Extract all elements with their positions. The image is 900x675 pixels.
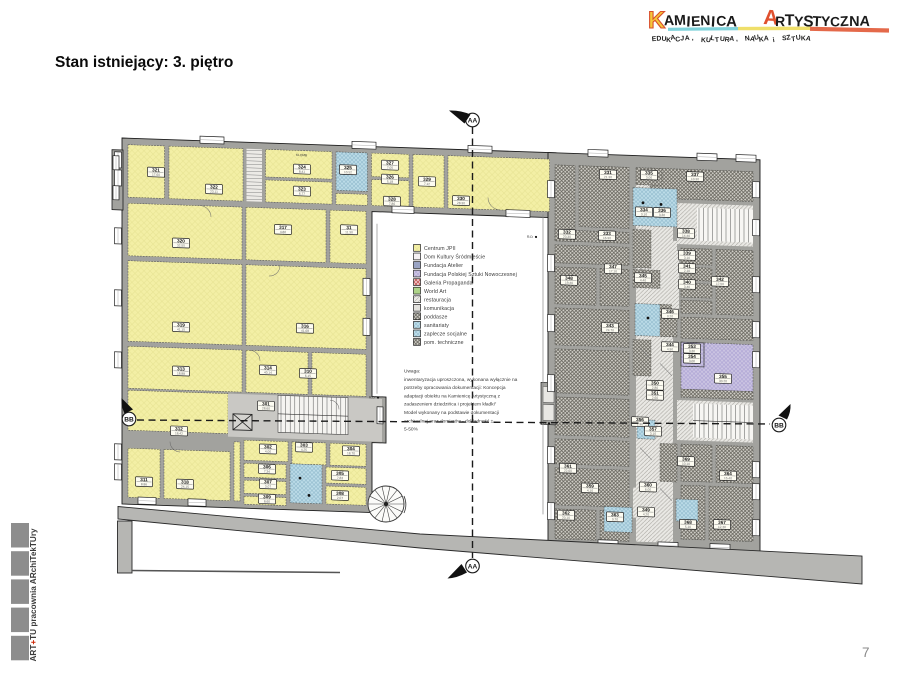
svg-text:13.30: 13.30	[691, 177, 699, 181]
svg-text:15.40: 15.40	[724, 476, 732, 480]
svg-text:adaptacji obiektu na Kamienicę: adaptacji obiektu na Kamienicę Artystycz…	[404, 393, 501, 399]
svg-text:4.00: 4.00	[265, 449, 271, 453]
svg-text:Uwaga:: Uwaga:	[404, 369, 420, 375]
svg-text:12.30: 12.30	[718, 525, 726, 529]
svg-text:4.20: 4.20	[643, 512, 649, 516]
svg-text:2.10: 2.10	[684, 269, 690, 273]
svg-text:17.50: 17.50	[716, 282, 724, 286]
svg-text:restauracja: restauracja	[424, 297, 451, 303]
svg-text:7.05: 7.05	[387, 166, 393, 170]
svg-text:8.86: 8.86	[141, 482, 147, 486]
svg-text:41.68: 41.68	[301, 329, 309, 333]
svg-text:22.60: 22.60	[564, 469, 572, 473]
svg-text:A: A	[764, 35, 769, 42]
svg-text:R.D: R.D	[527, 235, 533, 239]
svg-text:30.20: 30.20	[719, 379, 727, 383]
svg-text:21.30: 21.30	[604, 175, 612, 179]
svg-text:7: 7	[862, 645, 870, 660]
svg-text:24.15: 24.15	[181, 485, 189, 489]
svg-text:3.30: 3.30	[689, 349, 695, 353]
svg-text:3.00: 3.00	[646, 176, 652, 180]
svg-text:poddasze: poddasze	[424, 315, 447, 321]
svg-text:M: M	[674, 13, 687, 30]
svg-text:3.10: 3.10	[650, 432, 656, 436]
svg-text:2.80: 2.80	[652, 386, 658, 390]
svg-text:zaplecze socjalne: zaplecze socjalne	[424, 332, 467, 338]
svg-text:4.40: 4.40	[640, 278, 646, 282]
svg-text:Centrum JPII: Centrum JPII	[424, 246, 456, 252]
svg-text:Fundacja Polskiej Sztuki Nowoc: Fundacja Polskiej Sztuki Nowoczesnej	[424, 272, 517, 278]
svg-text:3.20: 3.20	[667, 314, 673, 318]
svg-text:BB: BB	[124, 416, 134, 423]
svg-text:A: A	[685, 35, 690, 42]
svg-text:17.60: 17.60	[152, 173, 160, 177]
svg-text:sanitariaty: sanitariaty	[424, 323, 449, 329]
svg-text:A: A	[729, 36, 735, 44]
svg-text:KLOMB: KLOMB	[296, 153, 307, 157]
svg-text:23.11: 23.11	[210, 190, 218, 194]
svg-text:10.10: 10.10	[682, 462, 690, 466]
svg-text:19.40: 19.40	[565, 281, 573, 285]
svg-text:6.00: 6.00	[645, 487, 651, 491]
svg-text:4.90: 4.90	[667, 347, 673, 351]
svg-text:7.86: 7.86	[389, 202, 395, 206]
svg-text:18.70: 18.70	[347, 451, 355, 455]
svg-text:3.40: 3.40	[684, 285, 690, 289]
svg-text:7.12: 7.12	[424, 182, 430, 186]
svg-text:24.70: 24.70	[606, 328, 614, 332]
svg-text:archiwalnej oraz domiarów - do: archiwalnej oraz domiarów - dokładność ±	[404, 418, 494, 424]
svg-text:18.42: 18.42	[175, 431, 183, 435]
svg-text:3.30: 3.30	[659, 213, 665, 217]
svg-text:Fundacja Atelier: Fundacja Atelier	[424, 263, 463, 269]
svg-text:20.30: 20.30	[563, 235, 571, 239]
svg-text:3.10: 3.10	[641, 212, 647, 216]
svg-text:18.88: 18.88	[177, 371, 185, 375]
svg-text:N: N	[700, 12, 711, 28]
svg-text:Galeria Propaganda: Galeria Propaganda	[424, 280, 473, 286]
svg-text:Dom Kultury Śródmieście: Dom Kultury Śródmieście	[424, 253, 485, 261]
svg-text:Model wykonany na podstawie do: Model wykonany na podstawie dokumentacji	[404, 410, 499, 416]
svg-text:3.10: 3.10	[684, 256, 690, 260]
svg-text:9.70: 9.70	[612, 517, 618, 521]
svg-text:11.30: 11.30	[345, 230, 353, 234]
svg-text:A: A	[859, 14, 871, 31]
svg-text:17.10: 17.10	[609, 269, 617, 273]
svg-text:7.83: 7.83	[337, 476, 343, 480]
svg-text:5.18: 5.18	[387, 180, 393, 184]
svg-text:komunikacja: komunikacja	[424, 306, 454, 312]
svg-text:R.D: R.D	[369, 395, 375, 399]
svg-text:2.07: 2.07	[337, 496, 343, 500]
svg-text:41.15: 41.15	[177, 327, 185, 331]
svg-text:7.34: 7.34	[264, 469, 270, 473]
svg-text:4.25: 4.25	[301, 448, 307, 452]
svg-text:zadaszeniem dziedzińca i proje: zadaszeniem dziedzińca i projektem kładk…	[404, 402, 497, 408]
svg-text:6.77: 6.77	[299, 192, 305, 196]
svg-text:pom. techniczne: pom. techniczne	[424, 340, 464, 346]
svg-text:5-50%: 5-50%	[404, 427, 419, 433]
svg-text:potrzeby opracowania dokumenta: potrzeby opracowania dokumentacji: Konce…	[404, 385, 506, 391]
svg-text:40.14: 40.14	[264, 370, 272, 374]
svg-text:inwentaryzacja uproszczona, wy: inwentaryzacja uproszczona, wykonana wył…	[404, 377, 518, 383]
svg-text:6.15: 6.15	[305, 374, 311, 378]
svg-text:14.40: 14.40	[682, 234, 690, 238]
svg-text:Stan istniejący: 3. piętro: Stan istniejący: 3. piętro	[55, 54, 233, 71]
svg-text:5.10: 5.10	[685, 525, 691, 529]
svg-text:8.60: 8.60	[264, 499, 270, 503]
svg-text:,: ,	[692, 35, 694, 42]
svg-text:3.07: 3.07	[265, 484, 271, 488]
svg-text:4.80: 4.80	[280, 230, 286, 234]
svg-text:2.60: 2.60	[652, 396, 658, 400]
svg-text:32.55: 32.55	[177, 243, 185, 247]
svg-text:AA: AA	[468, 563, 478, 570]
svg-text:ART+TU pracownia ARchiTekTUry: ART+TU pracownia ARchiTekTUry	[29, 528, 38, 662]
svg-text:AA: AA	[468, 117, 478, 124]
svg-text:8.41: 8.41	[299, 170, 305, 174]
svg-text:16.90: 16.90	[603, 236, 611, 240]
svg-text:20.10: 20.10	[562, 516, 570, 520]
svg-text:28.30: 28.30	[457, 201, 465, 205]
svg-text:3.00: 3.00	[689, 359, 695, 363]
svg-text:World Art: World Art	[424, 289, 447, 295]
svg-text:4.10: 4.10	[587, 489, 593, 493]
svg-text:BB: BB	[774, 422, 784, 429]
svg-text:10.52: 10.52	[344, 170, 352, 174]
svg-text:28.60: 28.60	[262, 406, 270, 410]
